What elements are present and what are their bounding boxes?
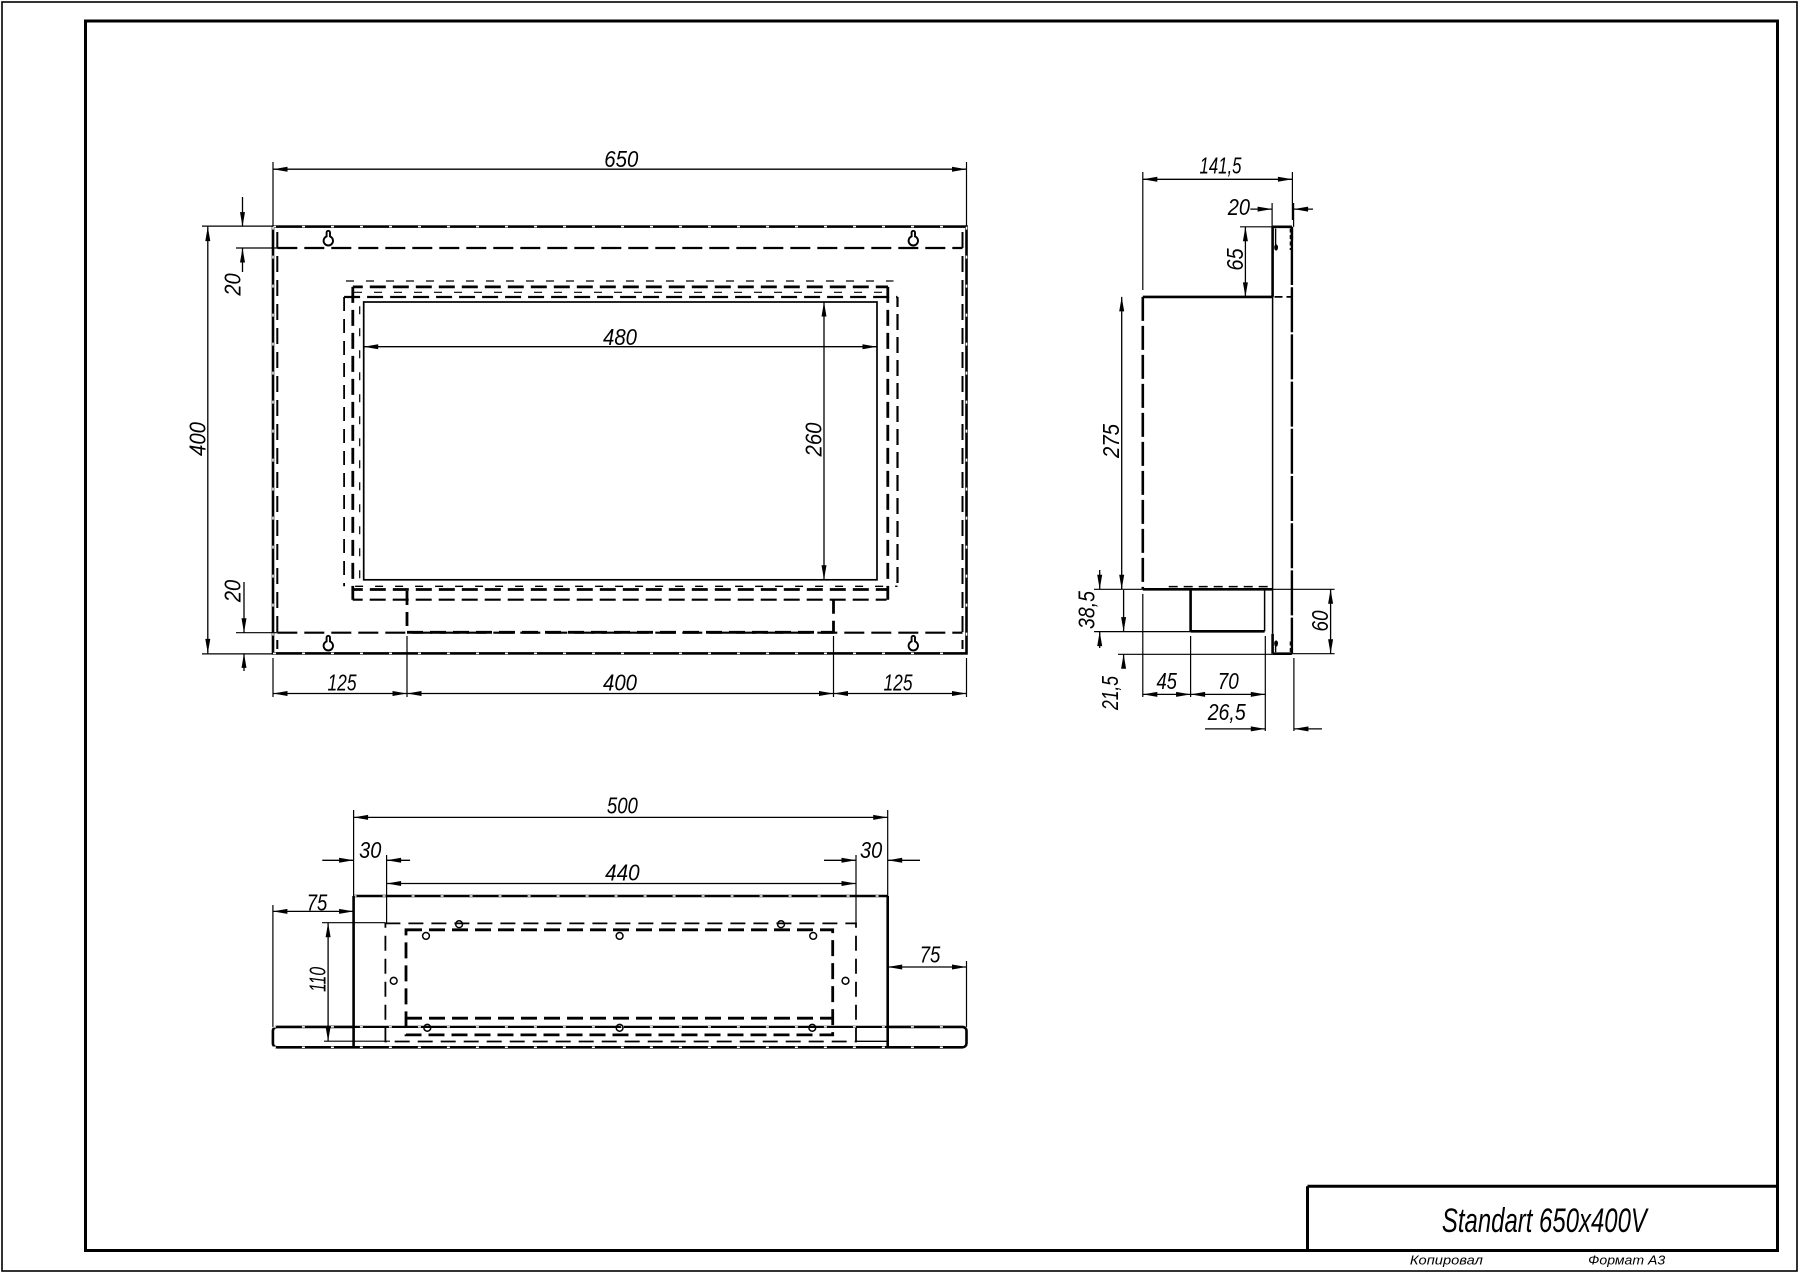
svg-text:125: 125 bbox=[884, 670, 913, 696]
svg-text:141,5: 141,5 bbox=[1200, 153, 1242, 179]
svg-text:Standart 650x400V: Standart 650x400V bbox=[1442, 1202, 1649, 1240]
svg-text:38,5: 38,5 bbox=[1074, 591, 1100, 629]
svg-text:70: 70 bbox=[1218, 668, 1239, 694]
svg-text:75: 75 bbox=[307, 890, 328, 916]
svg-text:30: 30 bbox=[359, 837, 381, 863]
svg-text:30: 30 bbox=[860, 837, 882, 863]
svg-text:440: 440 bbox=[605, 860, 640, 886]
svg-text:400: 400 bbox=[185, 422, 211, 456]
svg-text:20: 20 bbox=[220, 580, 246, 603]
svg-text:125: 125 bbox=[328, 670, 357, 696]
svg-text:60: 60 bbox=[1307, 610, 1333, 631]
svg-text:20: 20 bbox=[1227, 194, 1250, 220]
svg-text:65: 65 bbox=[1222, 248, 1248, 270]
svg-text:500: 500 bbox=[607, 793, 638, 819]
svg-text:260: 260 bbox=[801, 422, 827, 457]
svg-text:480: 480 bbox=[603, 324, 637, 350]
svg-text:650: 650 bbox=[604, 146, 638, 172]
svg-text:20: 20 bbox=[220, 273, 246, 296]
svg-text:75: 75 bbox=[920, 942, 941, 968]
svg-text:Копировал: Копировал bbox=[1410, 1253, 1483, 1267]
svg-text:275: 275 bbox=[1098, 424, 1124, 459]
svg-text:26,5: 26,5 bbox=[1207, 699, 1246, 725]
svg-text:400: 400 bbox=[603, 670, 637, 696]
svg-text:21,5: 21,5 bbox=[1097, 676, 1123, 711]
svg-text:Формат А3: Формат А3 bbox=[1588, 1253, 1665, 1267]
svg-text:110: 110 bbox=[305, 967, 331, 992]
svg-text:45: 45 bbox=[1156, 668, 1177, 694]
